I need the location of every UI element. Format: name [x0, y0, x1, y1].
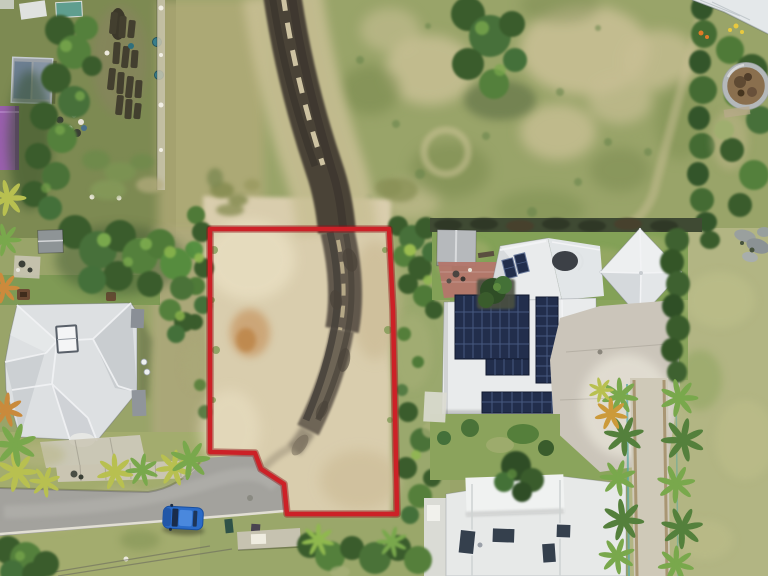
shade-sail	[552, 251, 578, 271]
manhole	[247, 495, 253, 501]
water-barrel	[128, 43, 134, 49]
car-rear-window	[193, 511, 198, 527]
garden-shed	[38, 230, 64, 254]
parked-car	[162, 503, 206, 536]
skylight	[56, 325, 78, 352]
car-windshield	[172, 508, 179, 526]
car-roof	[179, 510, 193, 527]
garden-fence	[157, 0, 165, 190]
ac-unit	[141, 359, 147, 365]
roof-annex	[132, 390, 147, 416]
aerial-photo: Aerial drone photo of a vacant land parc…	[0, 0, 768, 576]
patio-left	[13, 255, 40, 278]
roof-corner	[0, 0, 14, 9]
curbside-object	[71, 471, 78, 478]
aerial-photo-canvas: Aerial drone photo of a vacant land parc…	[0, 0, 768, 576]
wheelie-bin	[224, 519, 233, 534]
ac-unit	[144, 369, 150, 375]
roof-annex	[131, 309, 145, 328]
courtyard-tree	[477, 276, 515, 309]
white-wall	[423, 391, 447, 422]
